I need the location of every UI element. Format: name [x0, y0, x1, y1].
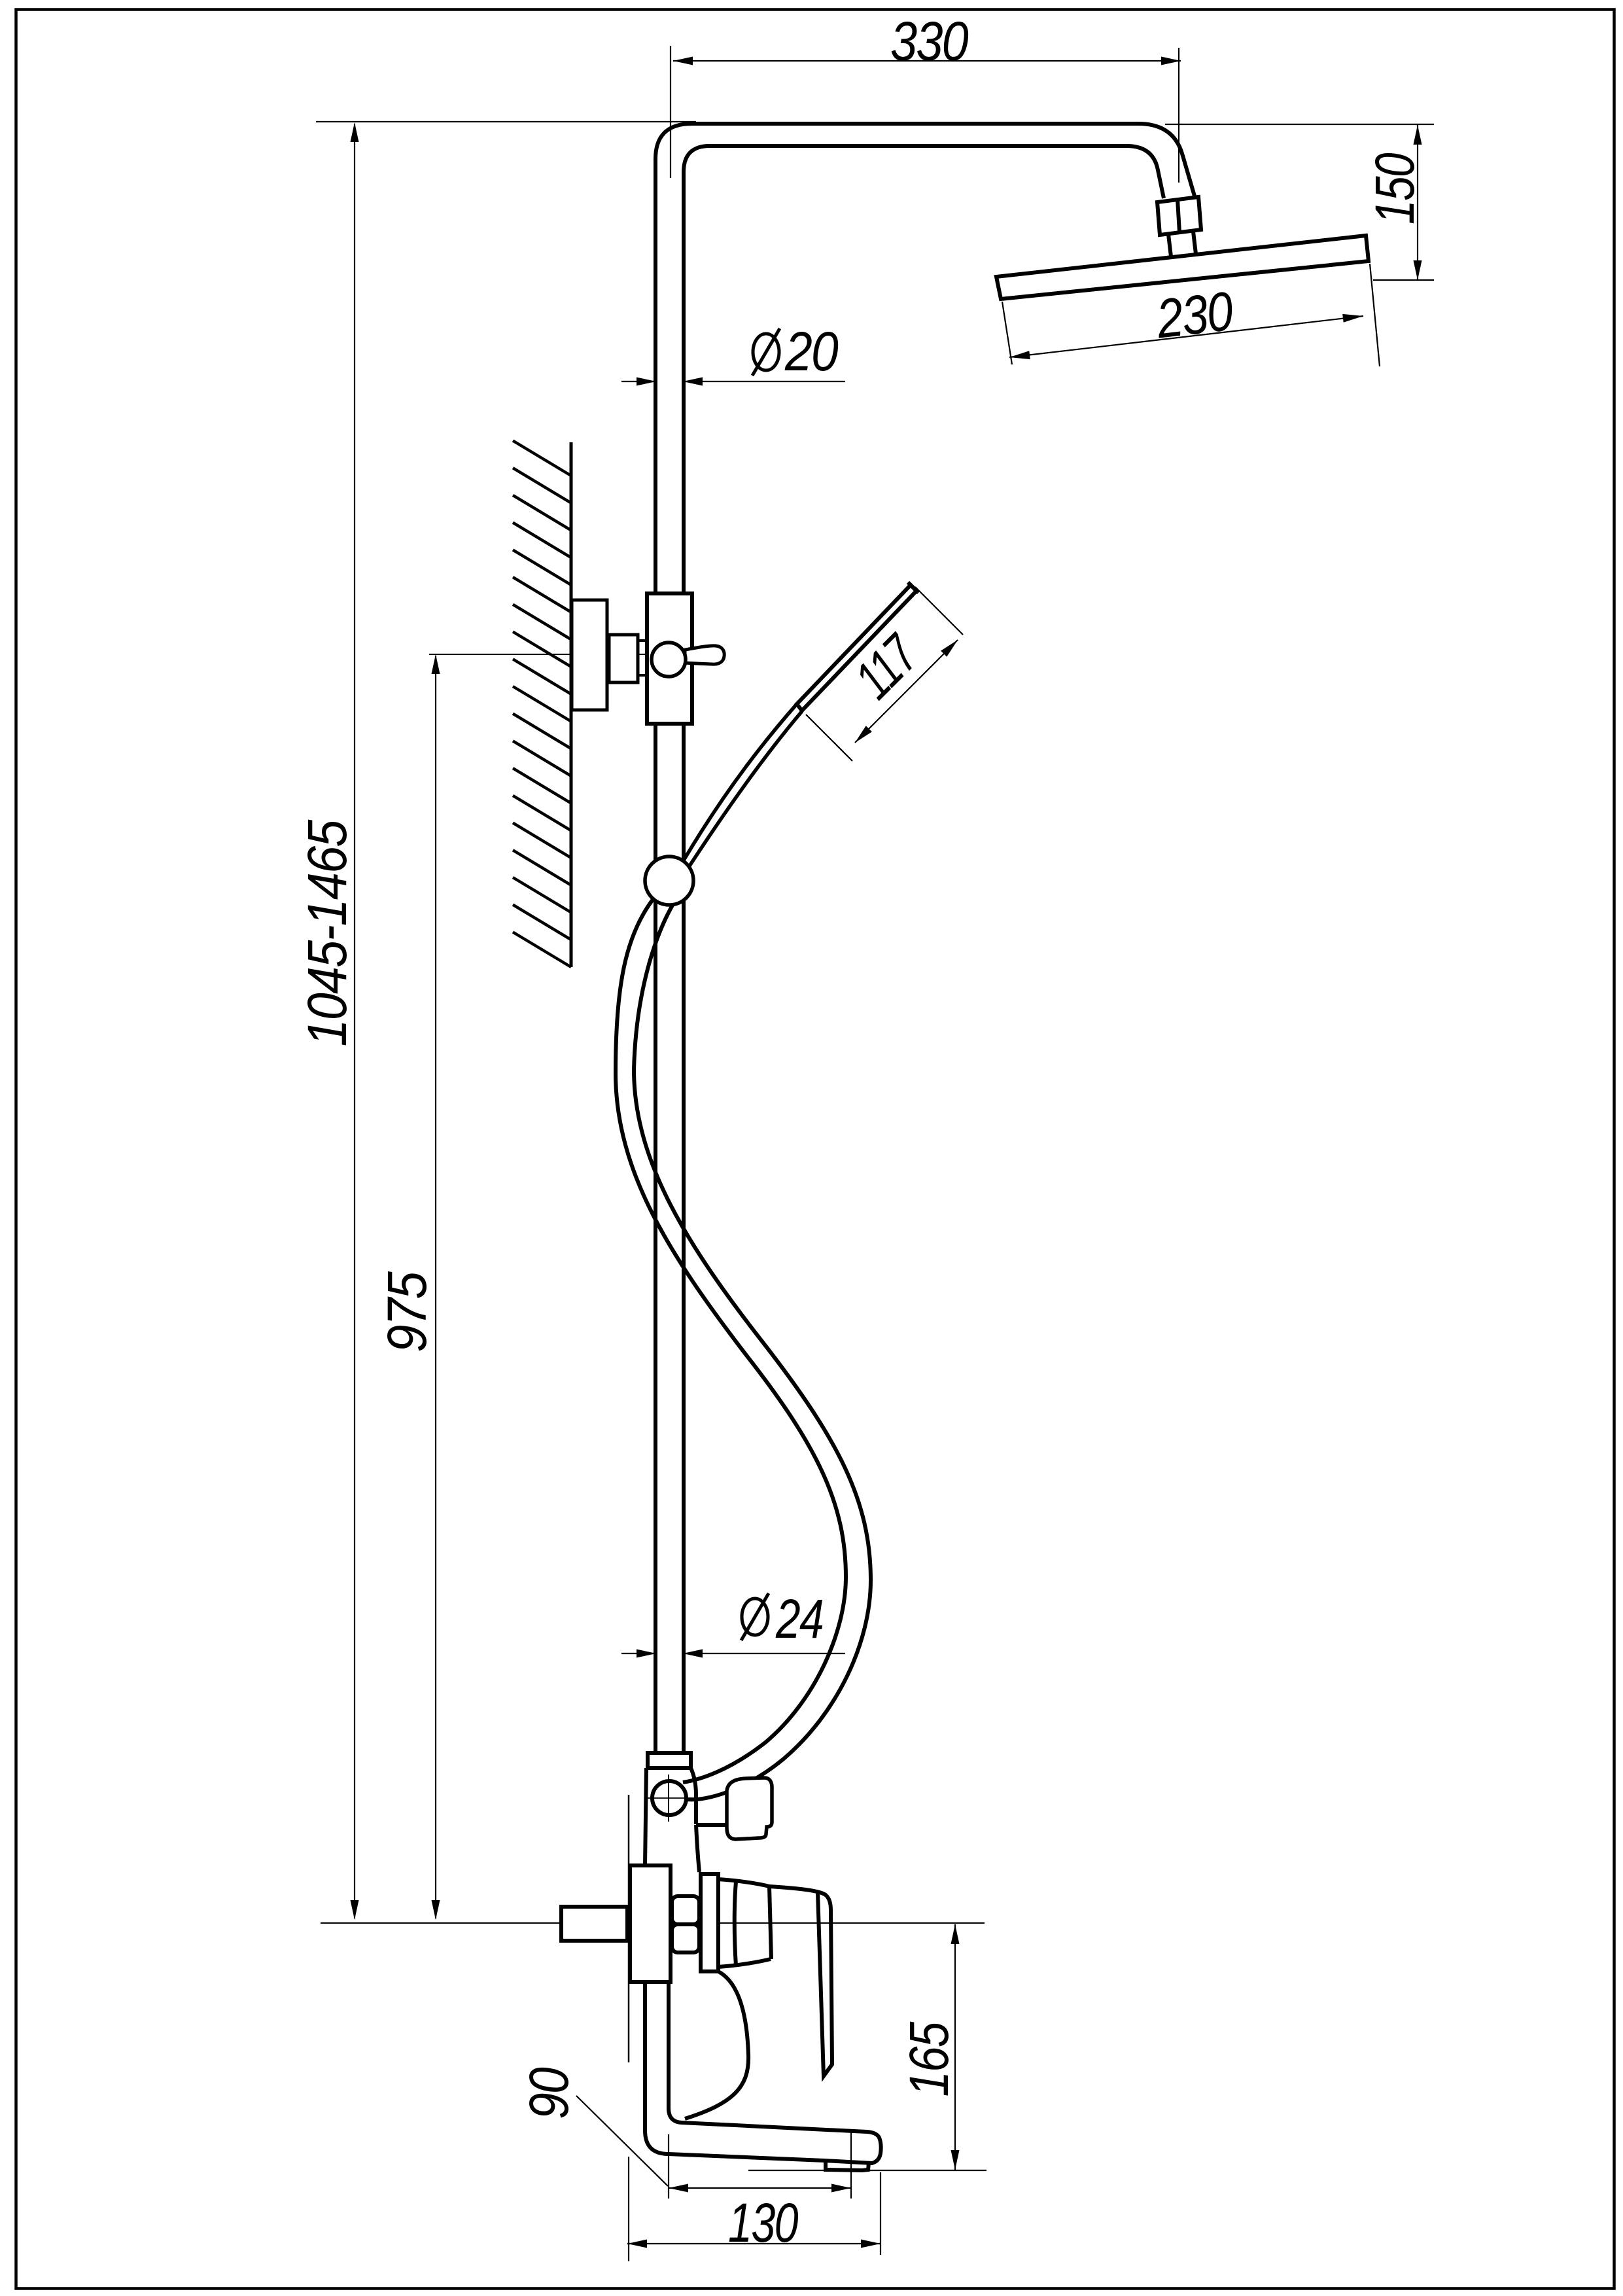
svg-text:975: 975 [376, 1271, 438, 1352]
svg-text:24: 24 [775, 1588, 823, 1650]
svg-text:330: 330 [890, 10, 969, 72]
svg-text:165: 165 [898, 2022, 960, 2097]
svg-text:90: 90 [518, 2067, 580, 2119]
svg-text:1045-1465: 1045-1465 [296, 819, 358, 1046]
svg-text:130: 130 [728, 2192, 799, 2253]
svg-text:20: 20 [784, 321, 839, 382]
svg-text:230: 230 [1153, 280, 1236, 350]
svg-text:150: 150 [1364, 152, 1425, 224]
svg-text:117: 117 [843, 622, 931, 710]
